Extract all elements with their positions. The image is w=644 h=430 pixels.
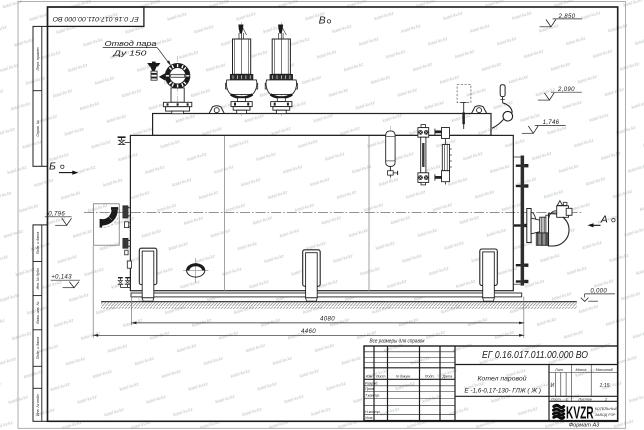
svg-text:Дата: Дата <box>442 375 453 379</box>
svg-text:+0,143: +0,143 <box>51 274 72 281</box>
svg-text:Т.контр.: Т.контр. <box>365 394 380 398</box>
svg-text:Справ. №: Справ. № <box>36 120 40 136</box>
svg-text:Лит.: Лит. <box>554 368 564 372</box>
svg-text:И: И <box>550 383 554 389</box>
svg-text:КОТЕЛЬНЫЙ: КОТЕЛЬНЫЙ <box>595 407 619 411</box>
svg-text:1,746: 1,746 <box>543 119 560 126</box>
svg-text:1:15: 1:15 <box>600 383 610 389</box>
svg-text:Подп. и дата: Подп. и дата <box>36 232 40 255</box>
svg-text:Взам. инв. №: Взам. инв. № <box>36 301 40 323</box>
svg-text:0,000: 0,000 <box>590 287 607 294</box>
svg-text:4460: 4460 <box>301 328 316 335</box>
svg-text:Отвод пара: Отвод пара <box>105 39 157 48</box>
svg-text:Изм: Изм <box>366 375 373 379</box>
svg-text:Лист: Лист <box>550 397 561 401</box>
svg-text:2,090: 2,090 <box>557 86 575 93</box>
svg-text:Перв. примен.: Перв. примен. <box>36 47 40 71</box>
svg-text:В: В <box>319 14 326 26</box>
svg-text:Ду 150: Ду 150 <box>112 49 148 58</box>
svg-text:Масса: Масса <box>576 368 587 372</box>
svg-text:Котел паровой: Котел паровой <box>478 375 527 383</box>
svg-text:ЗАВОД РЗР: ЗАВОД РЗР <box>595 413 616 417</box>
svg-text:KVZR: KVZR <box>566 402 594 422</box>
svg-text:Разраб.: Разраб. <box>365 381 378 385</box>
svg-text:ЕГ 0.16.017.011.00.000 ВО: ЕГ 0.16.017.011.00.000 ВО <box>53 15 139 22</box>
svg-text:2: 2 <box>604 397 607 401</box>
svg-text:Листов: Листов <box>577 397 592 401</box>
svg-text:Формат А3: Формат А3 <box>569 423 600 429</box>
svg-text:А: А <box>600 213 608 225</box>
svg-text:Инв. № дубл.: Инв. № дубл. <box>36 267 40 289</box>
svg-text:Б: Б <box>49 161 56 173</box>
svg-text:Е -1,6-0,17-130- ГЛЖ ( Ж ): Е -1,6-0,17-130- ГЛЖ ( Ж ) <box>464 389 541 395</box>
svg-text:1: 1 <box>566 397 568 401</box>
svg-text:Инв. № подл.: Инв. № подл. <box>36 394 40 416</box>
svg-text:-0,796: -0,796 <box>46 210 65 217</box>
svg-text:Подп.: Подп. <box>425 375 435 379</box>
svg-text:Все размеры для справок: Все размеры для справок <box>370 338 426 344</box>
svg-text:4080: 4080 <box>320 316 335 323</box>
svg-text:N докум.: N докум. <box>396 375 411 379</box>
svg-text:Утв.: Утв. <box>365 416 373 420</box>
svg-text:Масштаб: Масштаб <box>596 368 614 372</box>
svg-text:ЕГ 0.16.017.011.00.000 ВО: ЕГ 0.16.017.011.00.000 ВО <box>482 350 588 361</box>
svg-text:Подп. и дата: Подп. и дата <box>36 337 40 360</box>
svg-text:Лист: Лист <box>375 375 386 379</box>
svg-text:Н.контр.: Н.контр. <box>365 410 381 414</box>
svg-text:Пров.: Пров. <box>365 387 375 391</box>
